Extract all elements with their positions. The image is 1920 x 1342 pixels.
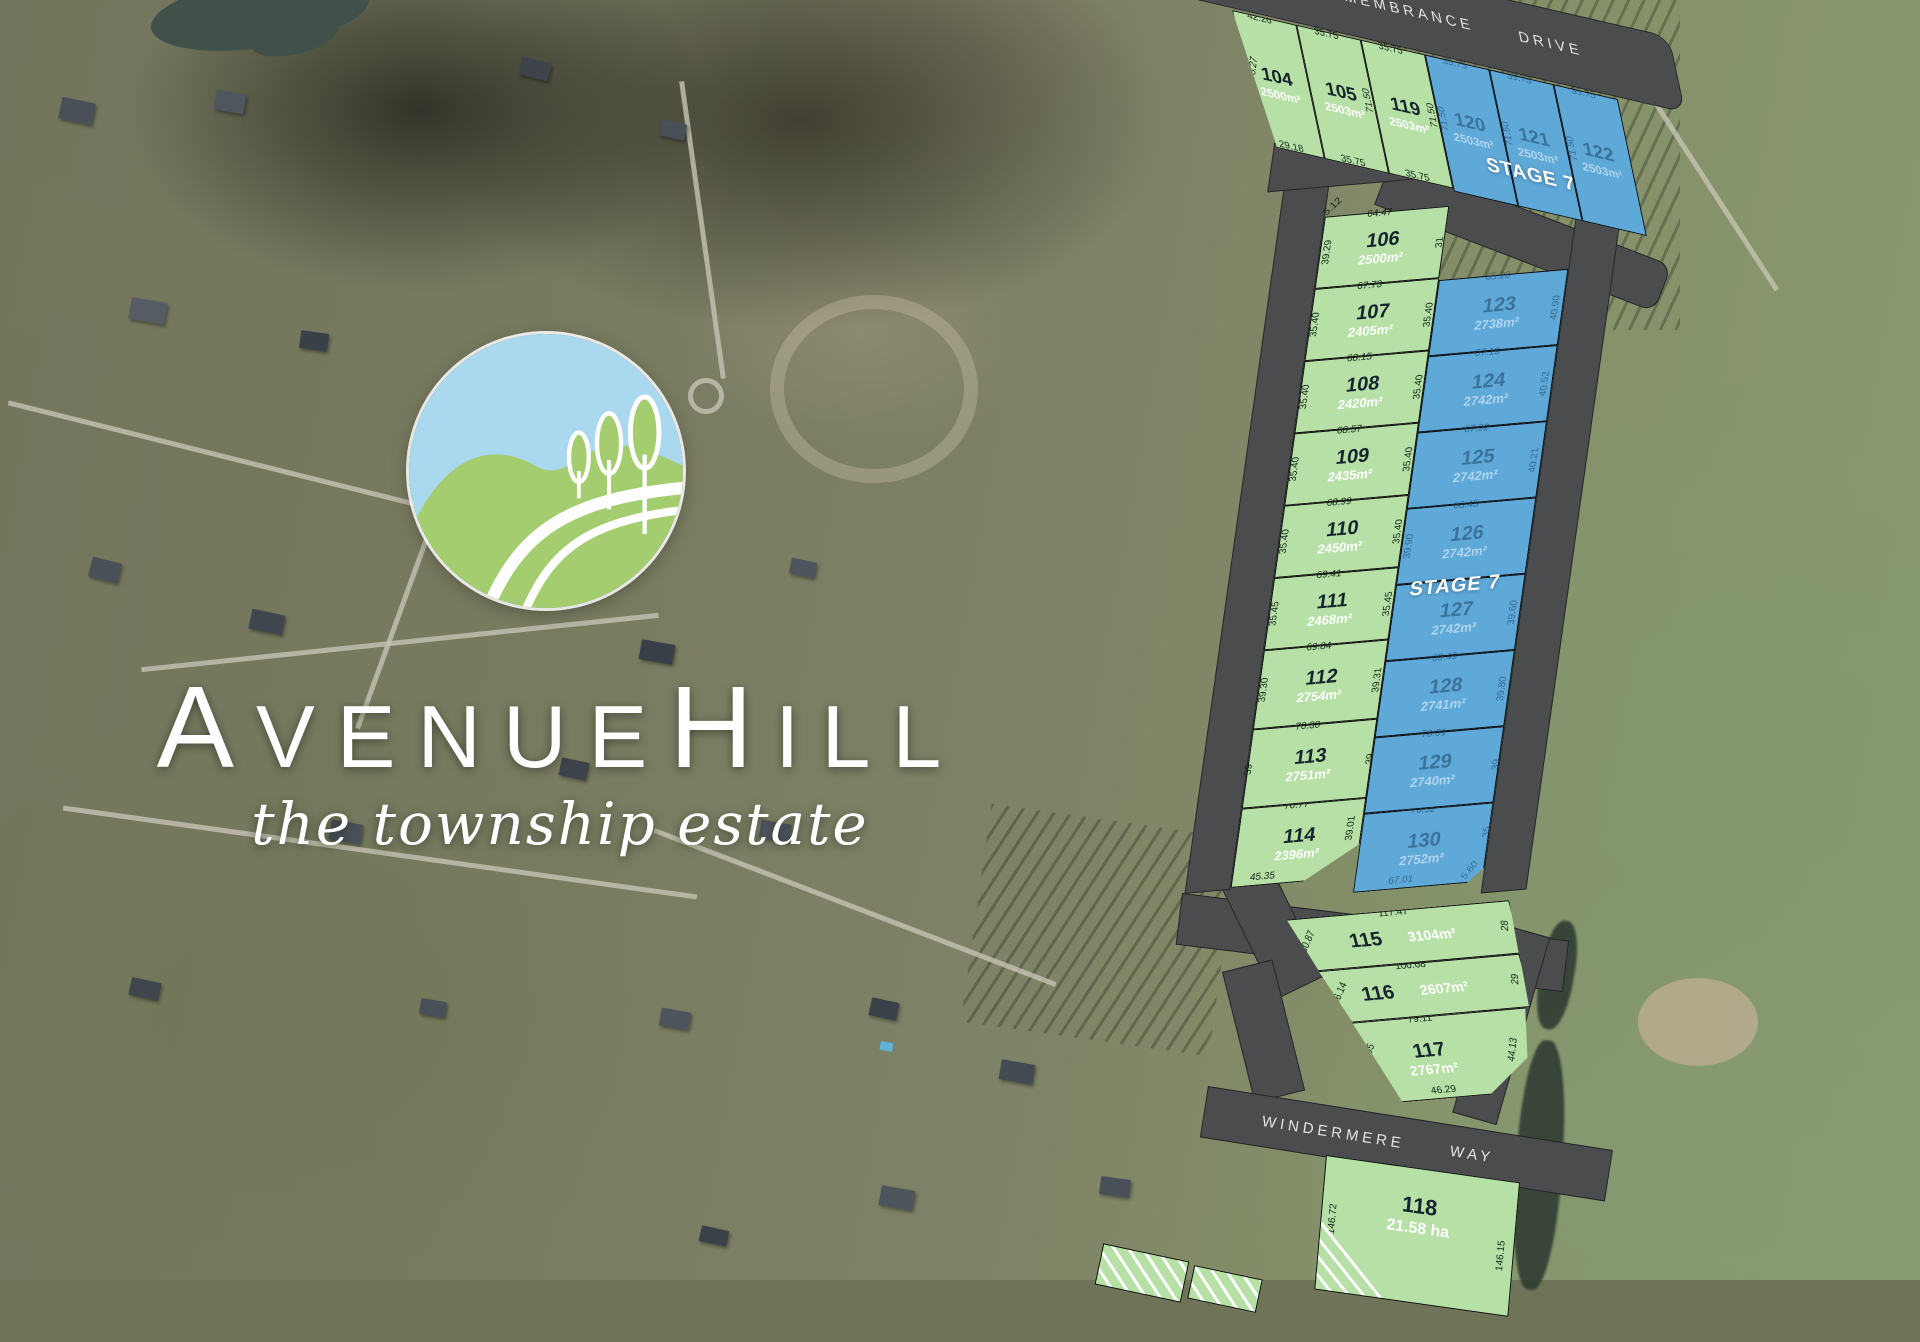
lot-112[interactable]: 1122754m² 69.84 39.30 39.31 (1253, 639, 1389, 729)
lot-number: 129 (1417, 751, 1453, 774)
lot-number: 106 (1365, 229, 1401, 252)
lot-area: 2396m² (1274, 845, 1320, 862)
dim-label: 29 (1510, 973, 1522, 985)
brand-title: AVENUEHILL (120, 660, 1000, 794)
dim-label: 44.13 (1506, 1036, 1520, 1062)
lot-number: 114 (1282, 824, 1317, 847)
lot-area: 2742m² (1463, 391, 1509, 408)
lot-area: 3104m² (1406, 925, 1458, 943)
lot-area: 2752m² (1398, 850, 1444, 867)
dim-label: 45.35 (1249, 870, 1275, 883)
lot-number: 126 (1449, 522, 1485, 545)
lot-area: 2742m² (1452, 468, 1498, 485)
lot-number: 108 (1345, 373, 1381, 396)
dim-label: 46.29 (1430, 1084, 1458, 1097)
lot-number: 125 (1460, 446, 1496, 469)
dim-label: 68.57 (1336, 424, 1362, 437)
lot-number: 127 (1439, 599, 1475, 622)
lot-108[interactable]: 1082420m² 68.15 35.40 35.40 (1294, 350, 1429, 433)
lot-110[interactable]: 1102450m² 68.99 35.40 35.40 (1274, 495, 1409, 578)
brand-tagline: the township estate (120, 790, 1000, 858)
dim-label: 68.99 (1326, 496, 1352, 509)
lot-107[interactable]: 1072405m² 67.73 35.40 35.40 (1305, 278, 1440, 361)
lot-number: 112 (1304, 666, 1339, 689)
dim-label: 39 (1490, 758, 1503, 770)
lot-area: 2607m² (1418, 979, 1470, 997)
dim-label: 69.49 (1431, 651, 1457, 664)
lot-area: 2767m² (1408, 1060, 1460, 1078)
lot-117[interactable]: 1172767m² 79.11 55 44.13 46.29 (1310, 1007, 1551, 1108)
avenue-hill-logo (409, 334, 683, 608)
cul-de-sac (688, 378, 724, 414)
remembrance-drive-label: DRIVE (1517, 28, 1585, 59)
lot-number: 117 (1410, 1039, 1447, 1061)
dirt-circle (770, 295, 978, 483)
lot-113[interactable]: 1132751m² 70.30 39 39 (1242, 719, 1378, 809)
lot-123[interactable]: 1232738m² 65.20 40.90 (1428, 269, 1568, 357)
brand-initial-a: A (157, 662, 256, 792)
dim-label: 28 (1499, 920, 1511, 932)
lot-number: 130 (1406, 829, 1442, 852)
lot-109[interactable]: 1092435m² 68.57 35.40 35.40 (1284, 423, 1419, 506)
lot-114[interactable]: 1142396m² 70.77 39.01 45.35 (1231, 798, 1367, 888)
lot-area: 2500m² (1357, 250, 1403, 267)
dim-label: 64.47 (1366, 207, 1392, 220)
lot-area: 2742m² (1441, 544, 1487, 561)
lot-area: 2754m² (1296, 687, 1342, 704)
lot-area: 2742m² (1431, 620, 1477, 637)
windermere-way-label: WAY (1449, 1143, 1496, 1167)
lot-area: 2435m² (1327, 467, 1373, 484)
lot-130[interactable]: 1302752m² 70.52 35 67.01 5.60 (1353, 802, 1494, 893)
dim-label: 70.30 (1294, 720, 1320, 733)
lot-area: 2751m² (1285, 766, 1331, 783)
lot-area: 2741m² (1420, 696, 1466, 713)
lot-area: 2450m² (1317, 539, 1363, 556)
dim-label: 67.73 (1356, 279, 1382, 292)
dim-label: 65.20 (1485, 270, 1511, 283)
lot-118-group: 118 21.58 ha 146.72 146.15 (1314, 1155, 1520, 1317)
lot-number: 116 (1359, 982, 1396, 1004)
lot-number: 111 (1315, 590, 1349, 613)
lot-number: 124 (1471, 370, 1507, 393)
lot-area: 2468m² (1307, 611, 1353, 628)
lot-number: 113 (1293, 745, 1328, 768)
lot-number: 110 (1325, 518, 1360, 541)
windermere-label: WINDERMERE (1261, 1113, 1406, 1152)
dim-label: 31 (1433, 236, 1446, 248)
lot-124[interactable]: 1242742m² 67.19 40.52 (1417, 345, 1557, 433)
lot-number: 128 (1428, 675, 1464, 698)
lot-area: 2740m² (1409, 772, 1455, 789)
brand-rest-venue: VENUE (256, 687, 669, 786)
lot-number: 107 (1355, 301, 1391, 324)
lot-125[interactable]: 1252742m² 67.92 40.21 (1407, 421, 1547, 509)
brand-rest-ill: ILL (775, 687, 963, 786)
dim-label: 67.01 (1387, 874, 1413, 887)
remembrance-label: REMEMBRANCE (1314, 0, 1476, 35)
lot-area: 2738m² (1474, 315, 1520, 332)
lot-129[interactable]: 1292740m² 70.01 39 (1364, 726, 1504, 814)
lot-128[interactable]: 1282741m² 69.49 39.80 (1375, 650, 1515, 738)
lot-number: 123 (1481, 294, 1517, 317)
dim-label: 39 (1242, 764, 1255, 776)
lot-111[interactable]: 1112468m² 69.41 35.45 35.45 (1264, 567, 1399, 650)
lot-number: 115 (1347, 929, 1384, 951)
lot-area: 2420m² (1337, 394, 1383, 411)
brand-initial-h: H (669, 662, 775, 792)
lot-area: 21.58 ha (1386, 1217, 1450, 1242)
sand-patch (1638, 978, 1758, 1066)
lot-118[interactable]: 118 21.58 ha 146.72 146.15 (1314, 1155, 1520, 1317)
dim-label: 69.41 (1316, 568, 1342, 581)
lot-area: 2405m² (1347, 322, 1393, 339)
lot-number: 109 (1335, 445, 1371, 468)
dim-label: 68.45 (1453, 499, 1479, 512)
logo-hills-trees-icon (409, 334, 683, 608)
lot-number: 118 (1401, 1193, 1438, 1220)
lot-106[interactable]: 1062500m² 64.47 5.12 39.29 31 (1315, 206, 1450, 289)
house (299, 330, 329, 352)
south-lots-group: 1153104m² 117.47 30.87 28 1162607m² 100.… (1282, 899, 1573, 1113)
dim-label: 67.19 (1474, 346, 1500, 359)
